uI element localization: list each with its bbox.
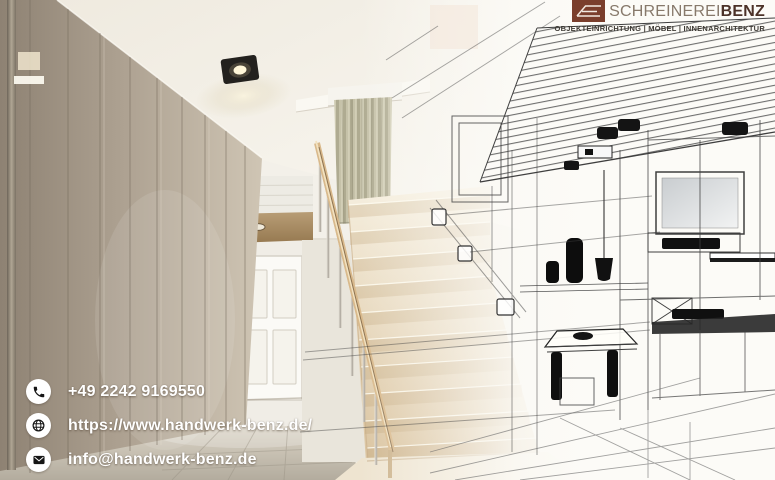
logo-mark-icon (572, 0, 605, 22)
brand-name-bold: BENZ (721, 3, 765, 20)
brand-name: SCHREINEREIBENZ (609, 2, 765, 22)
contact-row-phone[interactable]: +49 2242 9169550 (26, 379, 312, 404)
contact-block: +49 2242 9169550 https://www.handwerk-be… (26, 379, 312, 480)
phone-icon (26, 379, 51, 404)
envelope-icon (26, 447, 51, 472)
brand-tagline: OBJEKTEINRICHTUNG | MÖBEL | INNENARCHITE… (555, 24, 765, 33)
globe-icon (26, 413, 51, 438)
email-address: info@handwerk-benz.de (68, 451, 257, 469)
brand-logo: SCHREINEREIBENZ OBJEKTEINRICHTUNG | MÖBE… (555, 0, 765, 33)
contact-row-email[interactable]: info@handwerk-benz.de (26, 447, 312, 472)
promo-banner: SCHREINEREIBENZ OBJEKTEINRICHTUNG | MÖBE… (0, 0, 775, 480)
website-url: https://www.handwerk-benz.de/ (68, 417, 312, 435)
phone-number: +49 2242 9169550 (68, 383, 205, 401)
contact-row-website[interactable]: https://www.handwerk-benz.de/ (26, 413, 312, 438)
brand-name-regular: SCHREINEREI (609, 3, 721, 20)
